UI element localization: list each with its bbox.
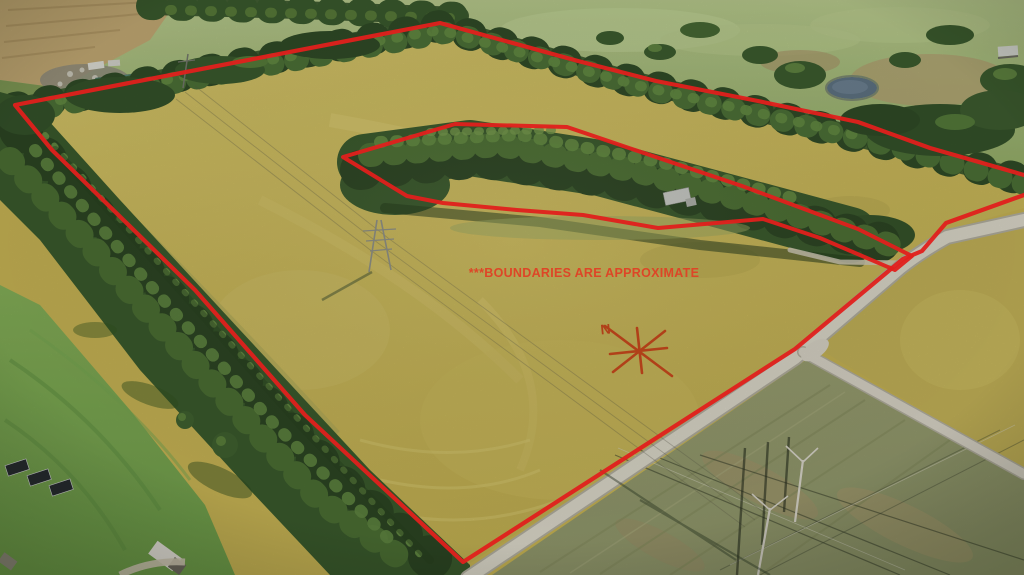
aerial-photo-canvas: N ***BOUNDARIES ARE APPROXIMATE xyxy=(0,0,1024,575)
aerial-property-photo: N ***BOUNDARIES ARE APPROXIMATE xyxy=(0,0,1024,575)
compass-north-label: N xyxy=(600,321,612,338)
boundary-disclaimer-text: ***BOUNDARIES ARE APPROXIMATE xyxy=(469,266,699,280)
